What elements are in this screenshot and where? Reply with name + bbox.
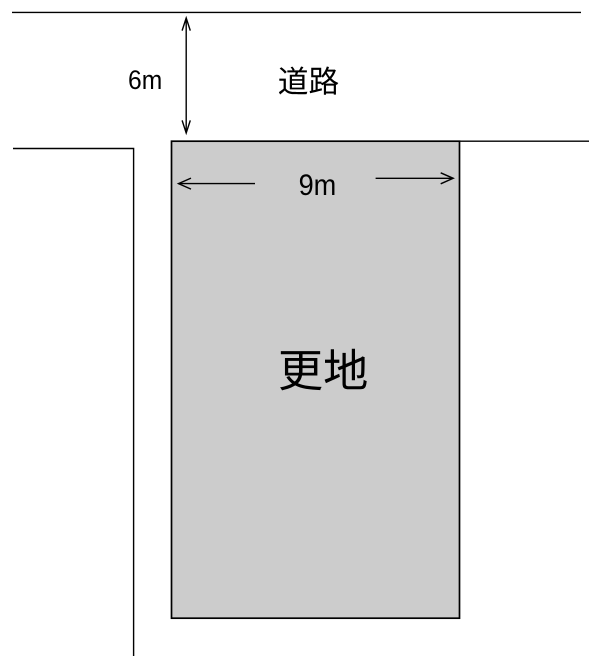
svg-text:9m: 9m (299, 169, 337, 202)
svg-text:6m: 6m (128, 65, 162, 95)
